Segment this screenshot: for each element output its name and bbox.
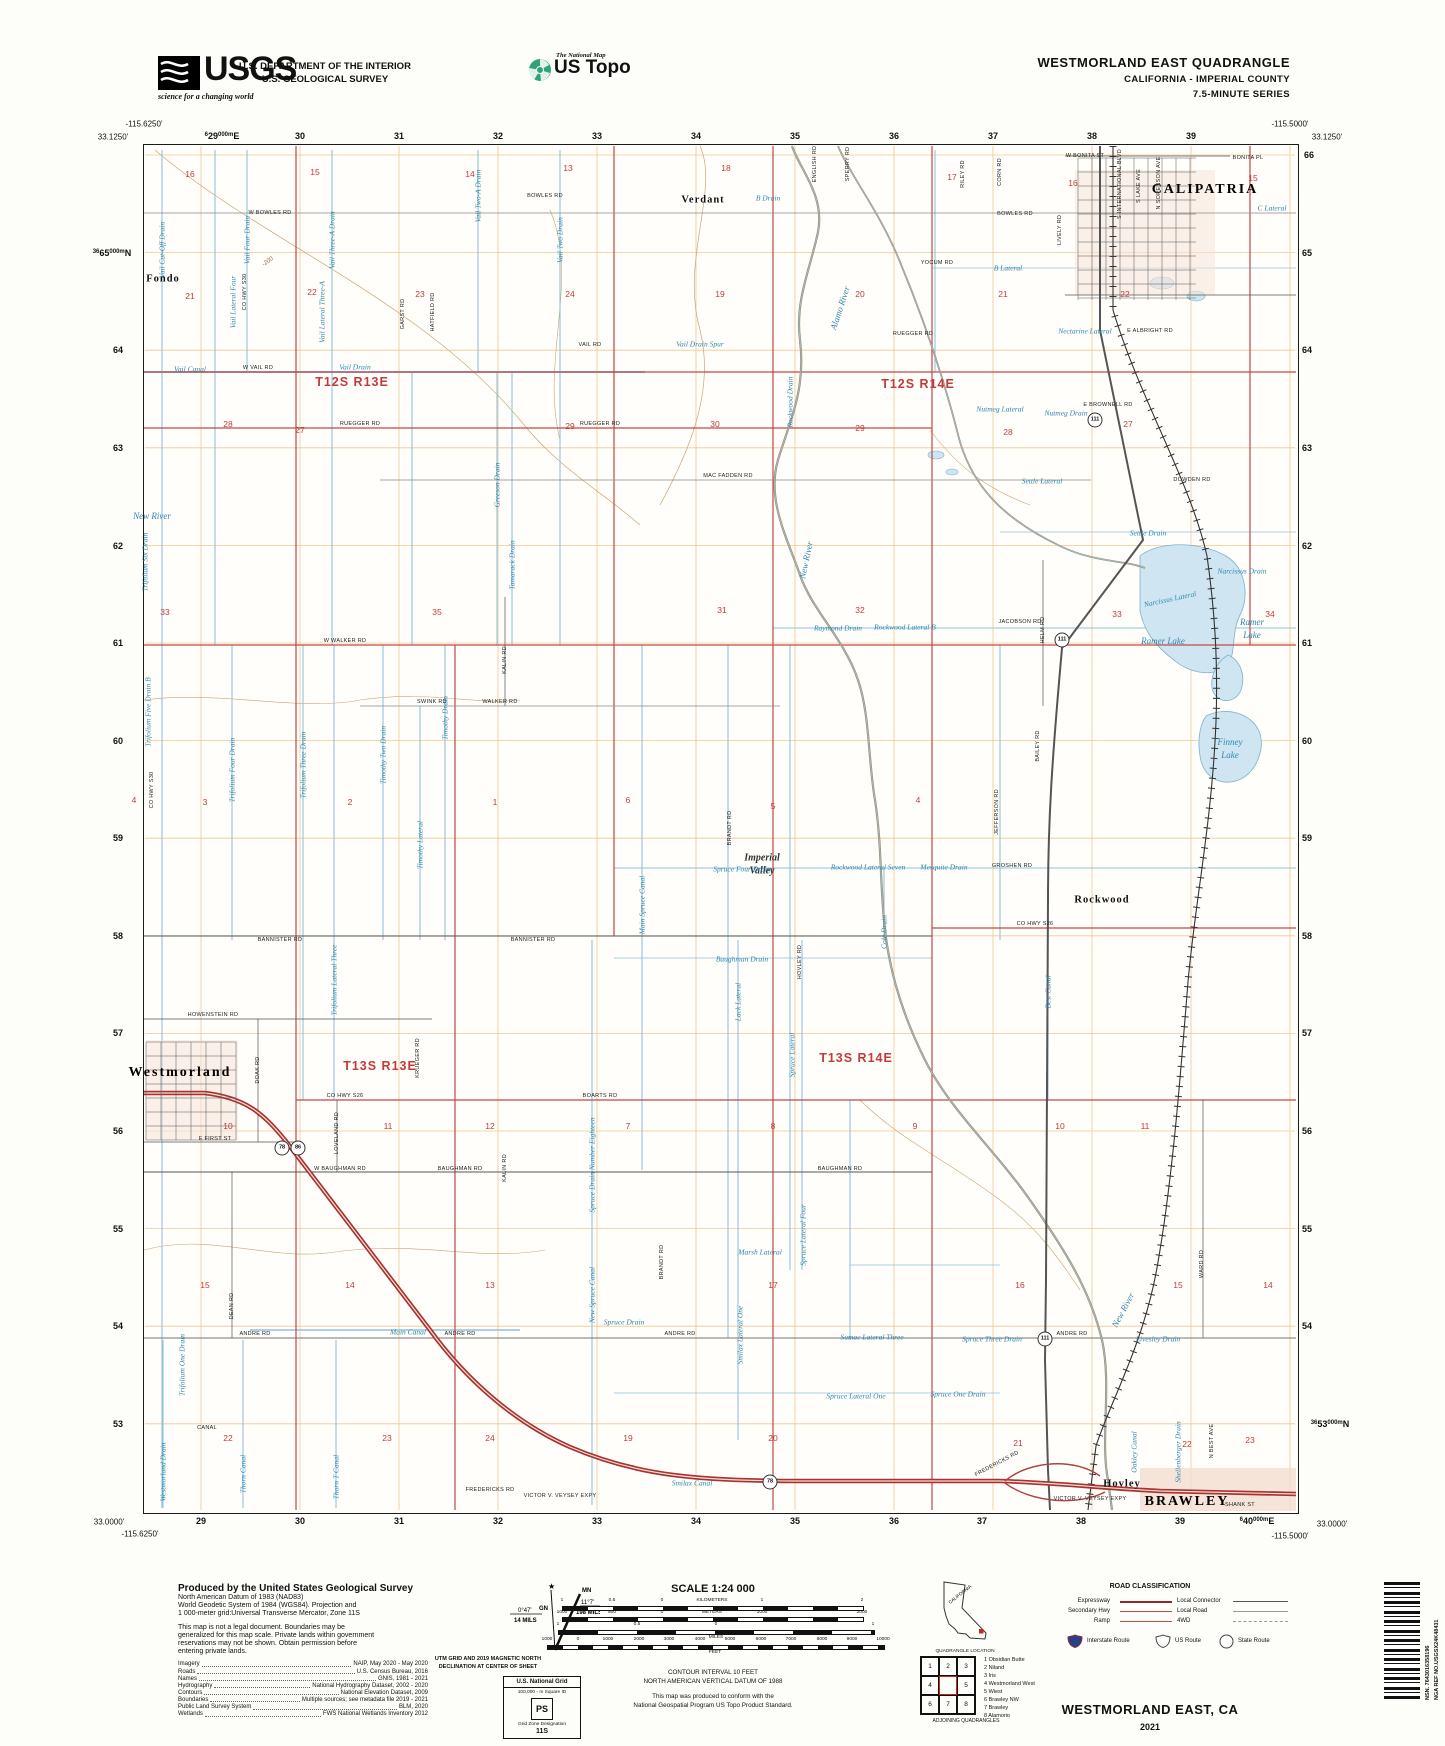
ustopo-icon [528, 58, 552, 82]
hydro-name-label: Lake [1221, 750, 1239, 760]
m-tick: METERS [702, 1610, 722, 1615]
m-bar [562, 1617, 864, 1622]
grid-number-left: 58 [113, 931, 123, 941]
water-label: Smilax Canal [672, 1479, 713, 1488]
data-source-row: RoadsU.S. Census Bureau, 2016 [178, 1669, 428, 1676]
grid-number-top: 31 [394, 131, 404, 141]
section-number: 28 [1003, 427, 1012, 437]
quad-state: CALIFORNIA - IMPERIAL COUNTY [1000, 74, 1290, 85]
quad-title-block: WESTMORLAND EAST QUADRANGLE CALIFORNIA -… [1000, 55, 1290, 100]
local-connector-sample [1233, 1601, 1288, 1602]
barcode [1384, 1582, 1420, 1700]
grid-number-top: 35 [790, 131, 800, 141]
ft-tick: 3000 [664, 1637, 675, 1642]
vertical-datum-note: NORTH AMERICAN VERTICAL DATUM OF 1988 [563, 1678, 863, 1687]
grid-number-top: 34 [691, 131, 701, 141]
local-road-sample [1233, 1611, 1288, 1612]
route-shield: 111 [1055, 633, 1070, 648]
road-label: BOWLES RD [997, 211, 1033, 217]
section-number: 8 [771, 1121, 776, 1131]
section-number: 4 [916, 795, 921, 805]
road-label: LIVELY RD [1057, 215, 1063, 245]
town-label: Verdant [681, 195, 724, 206]
hydro-name-label: Finney [1218, 737, 1243, 747]
adjoining-cell [939, 1676, 957, 1695]
water-label: Raymond Drain [814, 624, 862, 633]
adjoining-quad-name: 1 Obsidian Butte [984, 1656, 1104, 1664]
city-label: BRAWLEY [1145, 1494, 1230, 1510]
usng-zone: 11S [504, 1727, 580, 1738]
section-number: 4 [132, 795, 137, 805]
grid-number-top: 629000mE [205, 131, 240, 141]
section-number: 21 [998, 289, 1007, 299]
road-label: SPERRY RD [845, 147, 851, 182]
data-source-row: HydrographyNational Hydrography Dataset,… [178, 1683, 428, 1690]
section-number: 16 [185, 169, 194, 179]
road-label: ANDRE RD [1056, 1331, 1087, 1337]
declination-caption: UTM GRID AND 2019 MAGNETIC NORTH DECLINA… [408, 1655, 568, 1671]
road-label: W VAIL RD [243, 365, 273, 371]
water-label: Westmorland Drain [159, 1442, 168, 1501]
route-shield: 111 [1038, 1332, 1053, 1347]
km-tick: KILOMETERS [697, 1598, 728, 1603]
section-number: 15 [1248, 173, 1257, 183]
star-icon: ★ [548, 1582, 555, 1591]
road-label: YOCUM RD [921, 260, 953, 266]
hydro-name-label: New River [133, 511, 171, 521]
expressway-sample [1120, 1601, 1172, 1603]
grid-number-bottom: 32 [493, 1516, 503, 1526]
grid-number-left: 53 [113, 1419, 123, 1429]
water-label: Settle Lateral [1022, 477, 1063, 486]
km-tick: 2 [861, 1598, 864, 1603]
section-number: 13 [485, 1280, 494, 1290]
section-number: 13 [563, 163, 572, 173]
road-label: FREDERICKS RD [466, 1487, 515, 1493]
road-label: SHANK ST [1225, 1502, 1255, 1508]
road-label: N BEST AVE [1209, 1424, 1215, 1459]
road-label: LOVELAND RD [334, 1112, 340, 1154]
grid-number-right: 63 [1302, 443, 1312, 453]
water-label: Vail Four Drain [243, 216, 252, 264]
fourwd-sample [1233, 1621, 1288, 1622]
water-label: Vail Two-A Drain [474, 170, 483, 223]
water-label: Nutmeg Drain [1044, 409, 1087, 418]
grid-number-left: 62 [113, 541, 123, 551]
section-number: 23 [382, 1433, 391, 1443]
nsn-number: NSN. 7643016358196 [1425, 1646, 1431, 1700]
grid-number-right: 57 [1302, 1028, 1312, 1038]
grid-number-left: 57 [113, 1028, 123, 1038]
section-number: 22 [307, 287, 316, 297]
grid-number-right: 66 [1304, 150, 1314, 160]
water-label: Shellenberger Drain [1174, 1421, 1183, 1483]
road-label: GROSHEN RD [992, 863, 1032, 869]
water-label: Trifolium Three Drain [299, 732, 308, 799]
corner-coordinate: 33.1250' [98, 133, 128, 142]
data-source-row: BoundariesMultiple sources; see metadata… [178, 1697, 428, 1704]
ft-tick: 7000 [786, 1637, 797, 1642]
section-number: 22 [1120, 289, 1129, 299]
data-source-row: Public Land Survey SystemBLM, 2020 [178, 1704, 428, 1711]
water-label: Vail Cut-Off Drain [158, 222, 167, 278]
road-label: JACOBSON RD [998, 619, 1041, 625]
section-number: 16 [1015, 1280, 1024, 1290]
water-label: Lack Lateral [734, 983, 743, 1022]
road-label: BOWLES RD [527, 193, 563, 199]
road-label: KALIN RD [502, 1154, 508, 1182]
adjoining-quad-name: 3 Iris [984, 1672, 1104, 1680]
km-tick: 1 [561, 1598, 564, 1603]
water-label: Rockwood Lateral Seven [831, 863, 906, 872]
road-classification-title: ROAD CLASSIFICATION [1005, 1583, 1295, 1590]
water-label: Main Spruce Canal [638, 876, 647, 935]
california-outline: CALIFORNIA [936, 1580, 994, 1642]
nga-ref-number: NGA REF NO.USGSX24K48431 [1434, 1620, 1440, 1701]
grid-number-left: 3665000mN [93, 248, 132, 258]
water-label: Spruce Three Drain [962, 1335, 1022, 1344]
usng-square-id: PS [531, 1698, 553, 1720]
interstate-shield-icon [1067, 1634, 1083, 1648]
water-label: Vail Two Drain [556, 217, 565, 263]
adjoining-cell: 2 [939, 1657, 957, 1676]
township-label: T12S R14E [881, 377, 955, 391]
section-number: 16 [1068, 178, 1077, 188]
grid-number-bottom: 31 [394, 1516, 404, 1526]
section-number: 22 [223, 1433, 232, 1443]
water-label: New Spruce Canal [588, 1267, 597, 1323]
section-number: 29 [565, 421, 574, 431]
gn-mils: 14 MILS [514, 1618, 537, 1624]
section-number: 24 [485, 1433, 494, 1443]
road-label: VICTOR V. VEYSEY EXPY [1054, 1496, 1127, 1502]
section-number: 31 [717, 605, 726, 615]
sheet-year: 2021 [1030, 1722, 1270, 1732]
grid-number-bottom: 30 [295, 1516, 305, 1526]
section-number: 33 [1112, 609, 1121, 619]
corner-coordinate: 33.1250' [1312, 133, 1342, 142]
road-label: MAC FADDEN RD [703, 473, 752, 479]
water-label: Spruce Lateral [788, 1033, 797, 1078]
quadrangle-location-caption: QUADRANGLE LOCATION [930, 1649, 1000, 1654]
water-label: Livesley Drain [1136, 1335, 1180, 1344]
gn-label: GN [539, 1606, 548, 1612]
road-label: CANAL [197, 1425, 217, 1431]
mi-tick: 1 [872, 1622, 875, 1627]
road-label: E BROWNELL RD [1083, 402, 1132, 408]
road-label: GARST RD [400, 299, 406, 330]
road-label: S LAKE AVE [1136, 169, 1142, 203]
water-label: Spruce Drain [604, 1318, 645, 1327]
sheet-title: WESTMORLAND EAST, CA [1030, 1702, 1270, 1717]
water-label: Trifolium Four Drain [228, 738, 237, 803]
water-label: Spruce Lateral Four [799, 1204, 808, 1266]
road-label: BANNISTER RD [258, 937, 303, 943]
section-number: 14 [465, 169, 474, 179]
produced-line: This map is not a legal document. Bounda… [178, 1624, 428, 1632]
road-label: W BOWLES RD [248, 210, 291, 216]
route-shield: 86 [291, 1141, 306, 1156]
grid-number-right: 60 [1302, 736, 1312, 746]
m-tick: 1000 [757, 1610, 768, 1615]
adjoining-cell: 4 [921, 1676, 939, 1695]
water-label: Cole Drain [880, 915, 889, 949]
grid-number-right: 56 [1302, 1126, 1312, 1136]
water-label: Nectarine Lateral [1058, 327, 1112, 336]
road-label: BAILEY RD [1035, 730, 1041, 761]
grid-number-top: 32 [493, 131, 503, 141]
produced-line: 1 000-meter grid:Universal Transverse Me… [178, 1610, 428, 1618]
quad-title: WESTMORLAND EAST QUADRANGLE [1000, 55, 1290, 70]
ft-tick: 5000 [725, 1637, 736, 1642]
section-number: 23 [415, 289, 424, 299]
road-label: DOAK RD [255, 1056, 261, 1083]
water-label: Sumac Lateral Three [840, 1333, 903, 1342]
km-tick: 0.5 [609, 1598, 616, 1603]
section-number: 3 [203, 797, 208, 807]
section-number: 11 [384, 1121, 393, 1131]
corner-coordinate: 33.0000' [94, 1518, 124, 1527]
water-label: Timothy Lateral [416, 821, 425, 869]
corner-coordinate: -115.5000' [1272, 1532, 1309, 1541]
data-sources-table: ImageryNAIP, May 2020 - May 2020RoadsU.S… [178, 1661, 428, 1718]
map-notes: CONTOUR INTERVAL 10 FEET NORTH AMERICAN … [563, 1669, 863, 1710]
us-route-shield-icon [1155, 1634, 1171, 1648]
road-label: KALIN RD [502, 646, 508, 674]
adjoining-cell: 5 [957, 1676, 975, 1695]
road-label: CO HWY S26 [1017, 921, 1054, 927]
secondary-hwy-sample [1120, 1611, 1172, 1612]
lakes [928, 277, 1261, 782]
adjoining-cell: 7 [939, 1695, 957, 1714]
section-number: 15 [310, 167, 319, 177]
produced-line: entering private lands. [178, 1648, 428, 1656]
corner-coordinate: 33.0000' [1317, 1520, 1347, 1529]
road-label: HATFIELD RD [430, 293, 436, 332]
grid-number-right: 64 [1302, 345, 1312, 355]
grid-number-right: 58 [1302, 931, 1312, 941]
road-label: DEAN RD [229, 1293, 235, 1320]
route-shield: 111 [1088, 413, 1103, 428]
water-label: Baughman Drain [716, 955, 768, 964]
grid-number-bottom: 29 [196, 1516, 206, 1526]
road-label: ENGLISH RD [812, 146, 818, 183]
road-label: E ALBRIGHT RD [1127, 328, 1173, 334]
road-label: CORN RD [997, 158, 1003, 186]
agency-line2: U.S. GEOLOGICAL SURVEY [235, 73, 415, 86]
quadrangle-location: CALIFORNIA QUADRANGLE LOCATION [930, 1580, 1000, 1654]
grid-number-left: 59 [113, 833, 123, 843]
water-label: Vail Drain Spur [676, 340, 724, 349]
grid-number-left: 54 [113, 1321, 123, 1331]
section-number: 22 [1182, 1439, 1191, 1449]
sheet-title-block: WESTMORLAND EAST, CA 2021 [1030, 1702, 1270, 1732]
grid-number-left: 61 [113, 638, 123, 648]
section-number: 27 [295, 425, 304, 435]
city-label: Westmorland [129, 1065, 232, 1081]
usgs-tagline: science for a changing world [158, 92, 254, 101]
section-number: 17 [947, 172, 956, 182]
water-label: Vail Three-A Drain [328, 211, 337, 269]
grid-number-right: 54 [1302, 1321, 1312, 1331]
road-label: DOWDEN RD [1173, 477, 1210, 483]
road-label: RUEGGER RD [893, 331, 933, 337]
produced-title: Produced by the United States Geological… [178, 1583, 428, 1594]
valley-label: Imperial [744, 853, 780, 864]
water-label: Vail Drain [339, 363, 370, 372]
ft-tick: 4000 [695, 1637, 706, 1642]
adjoining-quadrangles: 12345678 1 Obsidian Butte2 Niland3 Iris4… [920, 1656, 976, 1715]
adjoining-cell: 8 [957, 1695, 975, 1714]
produced-line: World Geodetic System of 1984 (WGS84). P… [178, 1602, 428, 1610]
water-label: Marsh Lateral [738, 1248, 782, 1257]
grid-number-bottom: 36 [889, 1516, 899, 1526]
usgs-logo [158, 56, 200, 90]
produced-line: generalized for this map scale. Private … [178, 1632, 428, 1640]
section-number: 14 [1263, 1280, 1272, 1290]
grid-number-bottom: 37 [977, 1516, 987, 1526]
scale-title: SCALE 1:24 000 [562, 1583, 864, 1595]
grid-number-left: 60 [113, 736, 123, 746]
adjoining-cell: 1 [921, 1657, 939, 1676]
agency-lines: U.S. DEPARTMENT OF THE INTERIOR U.S. GEO… [235, 60, 415, 86]
grid-number-top: 30 [295, 131, 305, 141]
corner-coordinate: -115.6250' [122, 1530, 159, 1539]
water-label: Spruce Lateral One [826, 1392, 885, 1401]
grid-number-bottom: 38 [1076, 1516, 1086, 1526]
ustopo-label: US Topo [554, 57, 648, 79]
corner-coordinate: -115.6250' [126, 120, 163, 129]
road-label: HOWENSTEIN RD [188, 1012, 239, 1018]
produced-line: North American Datum of 1983 (NAD83) [178, 1594, 428, 1602]
road-label: BANNISTER RD [511, 937, 556, 943]
road-label: RUEGGER RD [340, 421, 380, 427]
road-label: N SORENSON AVE [1156, 157, 1162, 210]
ft-tick: 2000 [634, 1637, 645, 1642]
data-source-row: ContoursNational Elevation Dataset, 2009 [178, 1690, 428, 1697]
section-number: 28 [223, 419, 232, 429]
grid-number-top: 39 [1186, 131, 1196, 141]
route-shield: 78 [275, 1141, 290, 1156]
water-label: Oakley Canal [1130, 1431, 1139, 1472]
water-label: Spruce One Drain [931, 1390, 986, 1399]
grid-number-right: 61 [1302, 638, 1312, 648]
water-label: Narcissus Drain [1217, 567, 1266, 576]
route-shield: 78 [763, 1475, 778, 1490]
data-source-row: ImageryNAIP, May 2020 - May 2020 [178, 1661, 428, 1668]
section-number: 7 [626, 1121, 631, 1131]
water-label: Timothy Two Drain [379, 726, 388, 784]
section-number: 5 [771, 801, 776, 811]
section-number: 19 [623, 1433, 632, 1443]
grid-number-top: 36 [889, 131, 899, 141]
adjoining-quad-name: 2 Niland [984, 1664, 1104, 1672]
road-label: CO HWY S30 [149, 772, 155, 809]
ft-tick: 8000 [817, 1637, 828, 1642]
road-label: RUEGGER RD [580, 421, 620, 427]
section-number: 21 [185, 291, 194, 301]
road-label: VICTOR V. VEYSEY EXPY [524, 1493, 597, 1499]
grid-number-bottom: 34 [691, 1516, 701, 1526]
m-tick: 2000 [857, 1610, 868, 1615]
township-label: T13S R14E [819, 1051, 893, 1065]
adjoining-caption: ADJOINING QUADRANGLES [906, 1718, 1026, 1724]
water-label: Trifolium Five Drain B [144, 677, 153, 746]
water-label: Trifolium Six Drain [141, 533, 150, 592]
section-number: 20 [855, 289, 864, 299]
section-number: 32 [855, 605, 864, 615]
water-label: Spruce Four Drain [713, 865, 771, 874]
water-label: Settle Drain [1130, 529, 1166, 538]
road-label: CO HWY S30 [242, 274, 248, 311]
ft-tick: 1000 [542, 1637, 553, 1642]
grid-number-right: 55 [1302, 1224, 1312, 1234]
grid-number-bottom: 33 [592, 1516, 602, 1526]
section-number: 12 [485, 1121, 494, 1131]
water-label: Trifolium Lateral Three [330, 945, 339, 1016]
grid-number-right: 65 [1302, 248, 1312, 258]
water-label: B Lateral [994, 264, 1023, 273]
hydro-name-label: Ramer [1240, 617, 1264, 627]
grid-number-left: 63 [113, 443, 123, 453]
water-label: Vail Canal [174, 365, 206, 374]
road-label: WALKER RD [482, 699, 517, 705]
grid-number-left: 56 [113, 1126, 123, 1136]
road-label: S INTERNATIONAL BLVD [1117, 149, 1123, 219]
ft-tick: 0 [577, 1637, 580, 1642]
grid-number-bottom: 39 [1175, 1516, 1185, 1526]
corner-coordinate: -115.5000' [1272, 120, 1309, 129]
section-number: 9 [913, 1121, 918, 1131]
usgs-topo-sheet: USGS science for a changing world U.S. D… [0, 0, 1445, 1746]
quad-series: 7.5-MINUTE SERIES [1000, 89, 1290, 100]
road-label: HOVLEY RD [797, 945, 803, 979]
contour-interval-note: CONTOUR INTERVAL 10 FEET [563, 1669, 863, 1678]
grid-number-left: 64 [113, 345, 123, 355]
section-number: 14 [345, 1280, 354, 1290]
mi-tick: 1 [557, 1622, 560, 1627]
ft-tick: 10000 [876, 1637, 889, 1642]
road-label: SWINK RD [417, 699, 447, 705]
km-tick: 0 [661, 1598, 664, 1603]
m-tick: 500 [608, 1610, 616, 1615]
town-label: Hovley [1103, 1479, 1141, 1490]
water-label: Spruce Drain Number Eighteen [588, 1117, 597, 1212]
road-label: BONITA PL [1233, 155, 1264, 161]
grid-number-top: 33 [592, 131, 602, 141]
state-route-icon [1219, 1634, 1234, 1649]
section-number: 23 [1245, 1435, 1254, 1445]
section-number: 18 [721, 163, 730, 173]
hydro-name-label: Lake [1243, 630, 1261, 640]
section-number: 20 [768, 1433, 777, 1443]
road-label: KRUEGER RD [415, 1038, 421, 1078]
grid-number-left: 55 [113, 1224, 123, 1234]
produced-by-block: Produced by the United States Geological… [178, 1583, 428, 1718]
ft-unit: FEET [709, 1650, 721, 1655]
adjoining-quad-name: 5 Wiest [984, 1688, 1104, 1696]
section-number: 15 [200, 1280, 209, 1290]
water-label: Vail Lateral Three-A [318, 281, 327, 343]
section-number: 19 [715, 289, 724, 299]
section-number: 11 [1141, 1121, 1150, 1131]
ft-tick: 9000 [847, 1637, 858, 1642]
road-label: W BAUGHMAN RD [314, 1166, 366, 1172]
road-label: CO HWY S26 [327, 1093, 364, 1099]
water-label: Smilax Lateral One [736, 1306, 745, 1365]
road-label: HELM RD [1040, 617, 1046, 644]
township-label: T12S R13E [315, 375, 389, 389]
